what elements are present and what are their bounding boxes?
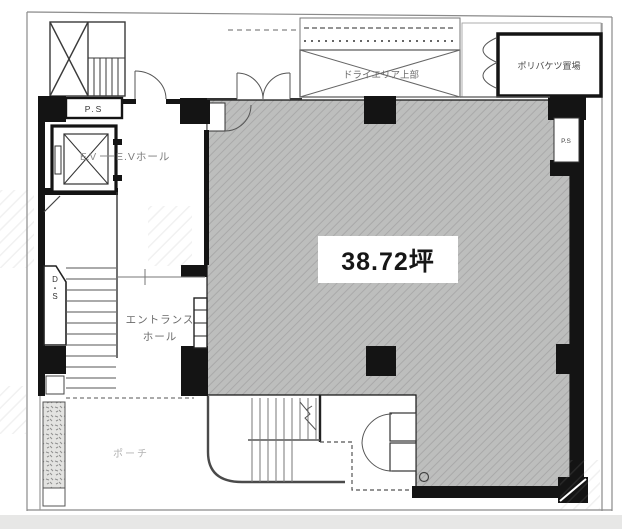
door-leaf	[390, 413, 416, 441]
dry-area: ドライエリア上部	[228, 18, 460, 97]
column	[364, 96, 396, 124]
column	[180, 98, 210, 124]
ps-top-label: P.S	[85, 104, 104, 114]
door-leaf	[390, 443, 416, 471]
column	[556, 344, 582, 374]
scan-edge	[0, 515, 622, 529]
notch-entry	[320, 395, 429, 490]
exterior-steps	[208, 396, 345, 482]
column	[38, 96, 66, 122]
elevator-label: E.V	[80, 152, 96, 163]
porch: ポーチ	[43, 398, 194, 506]
floor-plan: ドライエリア上部 ポリバケツ置場 38.72坪	[0, 0, 622, 529]
column	[366, 346, 396, 376]
column	[181, 346, 208, 396]
entrance-hall-label-1: エントランス	[126, 314, 195, 326]
door-arc	[135, 71, 166, 99]
porch-label: ポーチ	[113, 448, 149, 460]
floor-plan-image: ドライエリア上部 ポリバケツ置場 38.72坪	[0, 0, 622, 529]
tenant-area-polygon	[207, 100, 570, 490]
stair-treads-main	[66, 268, 116, 388]
top-doors	[135, 71, 290, 99]
staircase-block: D・S	[44, 266, 116, 394]
entrance-hall: エントランス ホール	[117, 269, 207, 348]
stair-block-top-left	[50, 22, 125, 96]
porch-wall-strip	[43, 402, 65, 488]
bucket-storage: ポリバケツ置場	[462, 23, 601, 97]
ps-right-label: P.S	[561, 138, 571, 145]
entrance-hall-label-2: ホール	[143, 331, 178, 343]
tenant-area: 38.72坪	[207, 100, 570, 490]
ds-label: D・S	[51, 275, 60, 301]
double-door-arcs	[237, 73, 290, 99]
area-label: 38.72坪	[341, 248, 435, 276]
elevator-hall-label: E.Vホール	[116, 151, 170, 163]
wall-left	[38, 96, 45, 396]
threshold-box	[46, 376, 64, 394]
double-door-arcs	[362, 414, 392, 471]
bucket-storage-label: ポリバケツ置場	[517, 60, 580, 71]
column	[548, 96, 586, 120]
dry-area-label: ドライエリア上部	[343, 69, 419, 81]
